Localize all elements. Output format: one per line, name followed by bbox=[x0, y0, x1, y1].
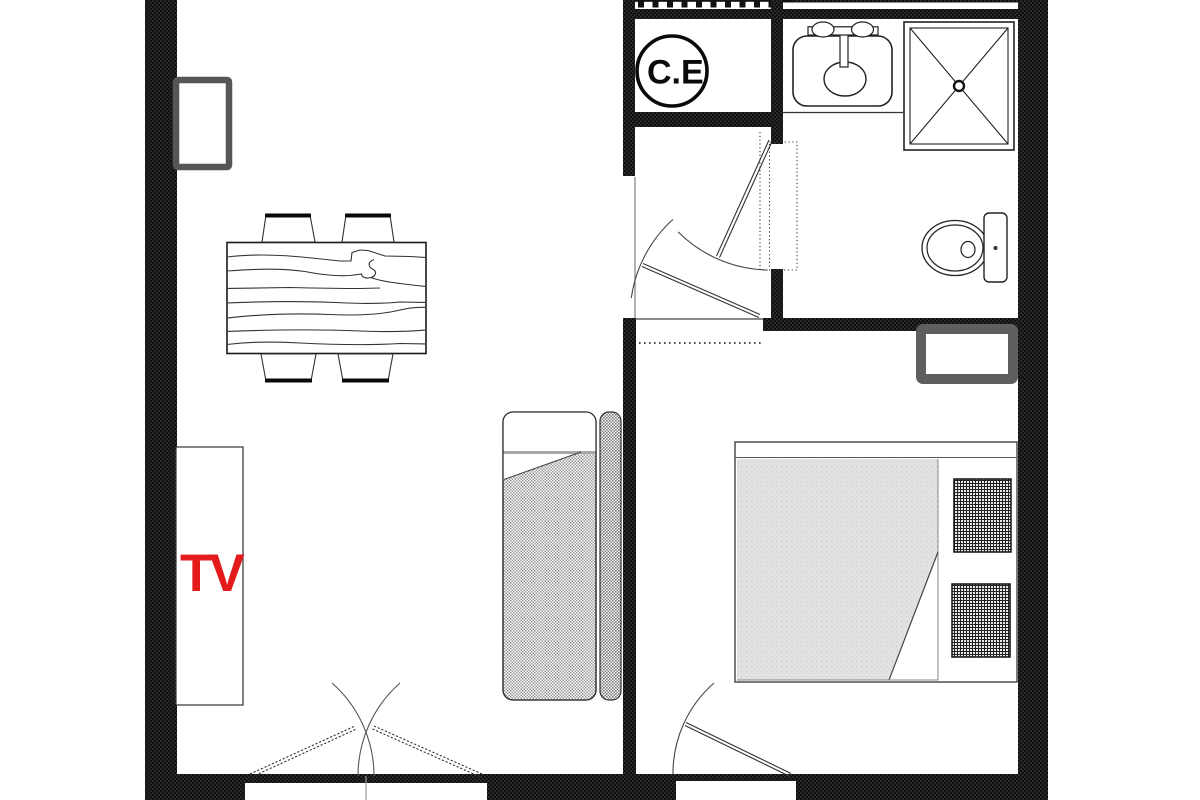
svg-text:C.E: C.E bbox=[647, 54, 704, 92]
svg-text:TV: TV bbox=[180, 544, 244, 603]
